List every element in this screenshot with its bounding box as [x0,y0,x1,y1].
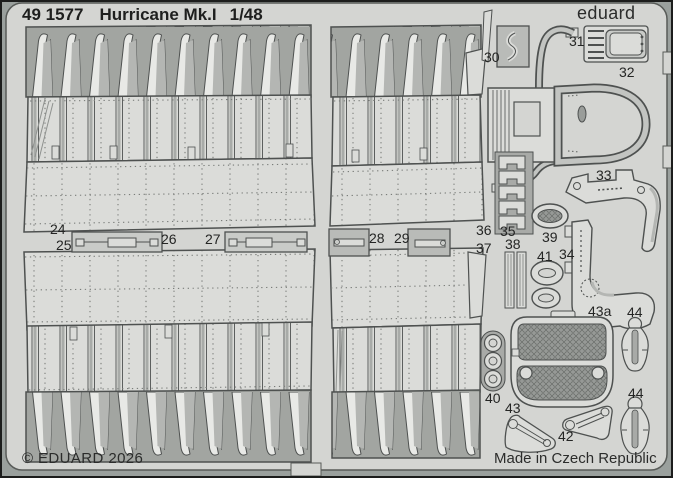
sheet-title: 49 1577 Hurricane Mk.I 1/48 [22,5,263,25]
part-label-44-upper: 44 [627,304,643,320]
part-label-25: 25 [56,237,72,253]
part-label-28: 28 [369,230,385,246]
part-37-flap [330,248,486,458]
fret-tab-bottom [291,463,321,476]
part-26-strip [72,232,162,252]
part-31-plate [584,26,648,62]
product-name: Hurricane Mk.I [99,5,216,25]
fret-graphic [0,0,673,478]
part-40-rings [481,331,505,391]
brand-logo: eduard [577,3,635,24]
part-label-29: 29 [394,230,410,246]
part-label-42: 42 [558,428,574,444]
part-label-33: 33 [596,167,612,183]
scale-label: 1/48 [230,5,263,25]
catalog-number: 49 1577 [22,5,83,25]
copyright-text: © EDUARD 2026 [22,450,143,467]
part-label-37: 37 [476,240,492,256]
part-label-40: 40 [485,390,501,406]
part-label-31: 31 [569,33,585,49]
photoetch-sheet-image: 49 1577 Hurricane Mk.I 1/48 eduard 24 25… [0,0,673,478]
part-29-block [408,229,450,256]
part-28-block [329,229,369,256]
part-label-34: 34 [559,246,575,262]
part-label-32: 32 [619,64,635,80]
part-24-flap [24,25,315,232]
part-label-39: 39 [542,229,558,245]
part-label-38: 38 [505,236,521,252]
part-label-27: 27 [205,231,221,247]
part-label-44-lower: 44 [628,385,644,401]
made-in-text: Made in Czech Republic [494,450,657,467]
part-label-24: 24 [50,221,66,237]
part-27-strip [225,232,307,252]
part-label-30: 30 [484,49,500,65]
part-43a-radiator [511,311,613,407]
part-35-clips [495,152,533,234]
part-36-flap [330,25,486,226]
part-label-41: 41 [537,248,553,264]
part-label-43a: 43a [588,303,611,319]
part-label-26: 26 [161,231,177,247]
part-39-mesh-oval [532,204,568,228]
part-label-43: 43 [505,400,521,416]
part-25-flap [24,249,315,462]
part-label-36: 36 [476,222,492,238]
